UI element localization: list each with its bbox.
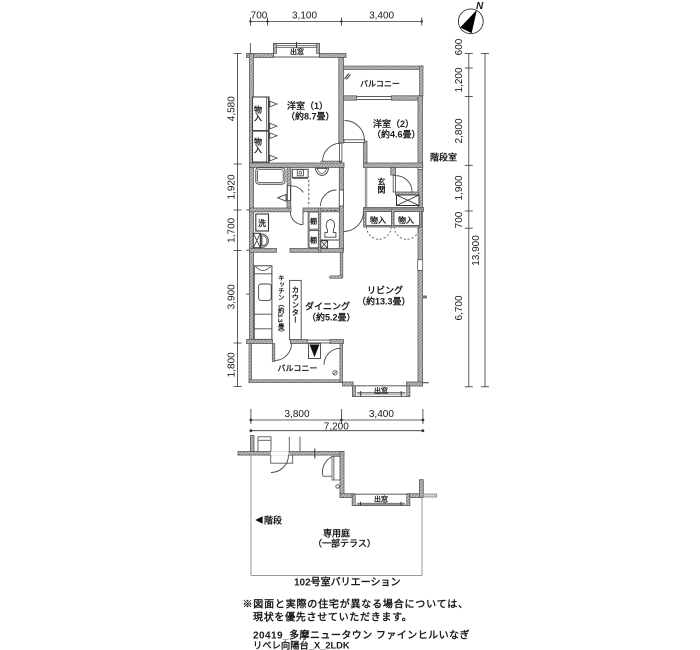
svg-text:現状を優先させていただきます。: 現状を優先させていただきます。 (253, 611, 413, 624)
svg-text:7,200: 7,200 (324, 421, 349, 432)
svg-text:3,400: 3,400 (369, 409, 394, 420)
svg-text:N: N (476, 1, 484, 12)
svg-text:700: 700 (454, 211, 465, 228)
svg-text:物入: 物入 (254, 105, 263, 123)
svg-text:2,800: 2,800 (454, 118, 465, 143)
svg-text:（約13.3畳）: （約13.3畳） (357, 296, 411, 307)
svg-text:バルコニー: バルコニー (360, 80, 400, 89)
svg-text:※図面と実際の住宅が異なる場合については、: ※図面と実際の住宅が異なる場合については、 (243, 598, 469, 611)
svg-text:バルコニー: バルコニー (278, 364, 318, 373)
svg-text:玄関: 玄関 (377, 177, 386, 195)
svg-text:6,700: 6,700 (454, 295, 465, 320)
svg-text:3,800: 3,800 (284, 409, 309, 420)
svg-text:物入: 物入 (254, 137, 263, 155)
svg-text:カウンター: カウンター (291, 286, 300, 324)
svg-text:3,900: 3,900 (227, 284, 238, 309)
svg-text:（約4.6畳）: （約4.6畳） (372, 129, 421, 140)
svg-text:600: 600 (454, 38, 465, 55)
svg-text:（約8.7畳）: （約8.7畳） (286, 111, 335, 122)
svg-text:700: 700 (251, 11, 268, 22)
svg-text:物入: 物入 (370, 215, 386, 225)
svg-text:（一部テラス）: （一部テラス） (313, 538, 376, 549)
svg-text:階段: 階段 (264, 515, 283, 526)
svg-text:3,400: 3,400 (369, 11, 394, 22)
svg-text:（約5.2畳）: （約5.2畳） (307, 312, 356, 323)
svg-text:ダイニング: ダイニング (305, 301, 350, 312)
svg-text:1,800: 1,800 (227, 352, 238, 377)
svg-text:出窓: 出窓 (290, 47, 304, 56)
svg-text:出窓: 出窓 (374, 495, 388, 504)
svg-text:棚: 棚 (310, 217, 317, 226)
svg-text:洋室（1）: 洋室（1） (287, 100, 328, 111)
svg-text:物入: 物入 (398, 215, 414, 225)
svg-text:リビング: リビング (367, 285, 403, 296)
svg-text:洋室（2）: 洋室（2） (373, 118, 414, 129)
svg-text:4,580: 4,580 (227, 96, 238, 121)
svg-text:専用庭: 専用庭 (323, 528, 351, 539)
svg-text:1,900: 1,900 (454, 175, 465, 200)
svg-text:13,900: 13,900 (471, 235, 482, 266)
svg-text:1,200: 1,200 (454, 67, 465, 92)
svg-text:洗: 洗 (258, 218, 266, 228)
svg-text:1,700: 1,700 (227, 217, 238, 242)
svg-text:リベレ向陽台_X_2LDK: リベレ向陽台_X_2LDK (253, 640, 350, 650)
svg-text:1,920: 1,920 (227, 174, 238, 199)
svg-text:3,100: 3,100 (292, 11, 317, 22)
svg-text:102号室バリエーション: 102号室バリエーション (294, 576, 401, 589)
svg-text:出窓: 出窓 (374, 386, 388, 395)
svg-text:階段室: 階段室 (430, 152, 457, 163)
svg-text:棚: 棚 (310, 235, 317, 244)
